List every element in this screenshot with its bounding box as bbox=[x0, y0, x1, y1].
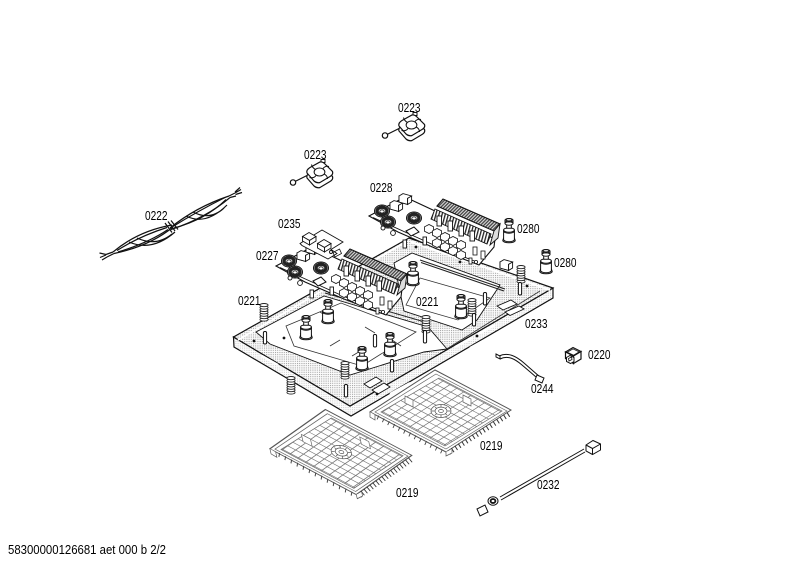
svg-text:0223: 0223 bbox=[304, 148, 327, 162]
svg-text:0221: 0221 bbox=[416, 295, 439, 309]
svg-text:0222: 0222 bbox=[145, 209, 168, 223]
svg-text:0233: 0233 bbox=[525, 317, 548, 331]
svg-text:0232: 0232 bbox=[537, 478, 560, 492]
svg-text:0280: 0280 bbox=[554, 256, 577, 270]
svg-text:0227: 0227 bbox=[256, 249, 279, 263]
svg-text:0235: 0235 bbox=[278, 217, 301, 231]
svg-text:58300000126681 aet 000 b 2/2: 58300000126681 aet 000 b 2/2 bbox=[8, 542, 166, 557]
svg-text:0244: 0244 bbox=[531, 382, 554, 396]
svg-text:0228: 0228 bbox=[370, 181, 393, 195]
svg-text:0219: 0219 bbox=[396, 486, 419, 500]
svg-text:0223: 0223 bbox=[398, 101, 421, 115]
svg-text:0221: 0221 bbox=[238, 294, 261, 308]
svg-text:0219: 0219 bbox=[480, 439, 503, 453]
svg-text:0280: 0280 bbox=[517, 222, 540, 236]
svg-text:0220: 0220 bbox=[588, 348, 611, 362]
